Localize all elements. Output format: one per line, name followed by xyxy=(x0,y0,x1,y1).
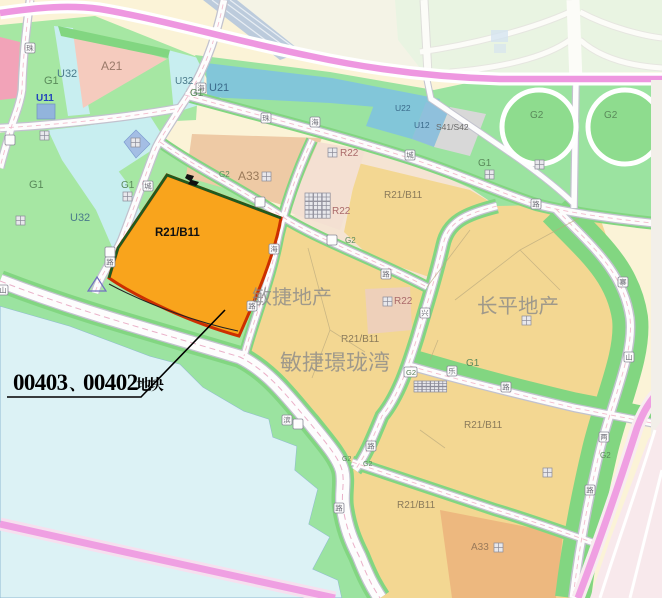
svg-text:S41/S42: S41/S42 xyxy=(436,122,469,132)
svg-text:U32: U32 xyxy=(175,76,194,87)
svg-text:U32: U32 xyxy=(57,68,77,80)
svg-text:R21/B11: R21/B11 xyxy=(397,500,436,511)
svg-text:G2: G2 xyxy=(406,368,416,377)
svg-text:U12: U12 xyxy=(414,120,430,130)
svg-text:G1: G1 xyxy=(190,88,204,99)
svg-text:U21: U21 xyxy=(209,82,229,94)
svg-text:A33: A33 xyxy=(471,542,489,553)
svg-text:R21/B11: R21/B11 xyxy=(155,227,200,239)
svg-text:00402: 00402 xyxy=(83,370,138,395)
svg-text:R21/B11: R21/B11 xyxy=(464,420,503,431)
svg-text:R21/B11: R21/B11 xyxy=(384,190,423,201)
svg-text:G2: G2 xyxy=(600,451,611,460)
svg-text:R22: R22 xyxy=(394,296,413,307)
svg-text:R22: R22 xyxy=(340,148,359,159)
svg-text:G1: G1 xyxy=(121,180,135,191)
svg-text:G1: G1 xyxy=(29,179,44,191)
svg-text:R22: R22 xyxy=(332,206,351,217)
svg-text:G2: G2 xyxy=(530,110,544,121)
svg-text:G2: G2 xyxy=(604,110,618,121)
svg-text:A33: A33 xyxy=(238,169,260,183)
svg-text:U22: U22 xyxy=(395,103,411,113)
svg-text:G2: G2 xyxy=(363,461,372,468)
svg-text:00403: 00403 xyxy=(13,370,68,395)
svg-text:A21: A21 xyxy=(101,59,123,73)
svg-text:G2: G2 xyxy=(345,236,356,245)
svg-text:U32: U32 xyxy=(70,212,90,224)
svg-text:G1: G1 xyxy=(466,358,480,369)
svg-text:G1: G1 xyxy=(478,158,492,169)
svg-text:G2: G2 xyxy=(219,170,230,179)
svg-text:R21/B11: R21/B11 xyxy=(341,334,380,345)
svg-text:U11: U11 xyxy=(36,93,54,104)
svg-text:G2: G2 xyxy=(342,456,351,463)
